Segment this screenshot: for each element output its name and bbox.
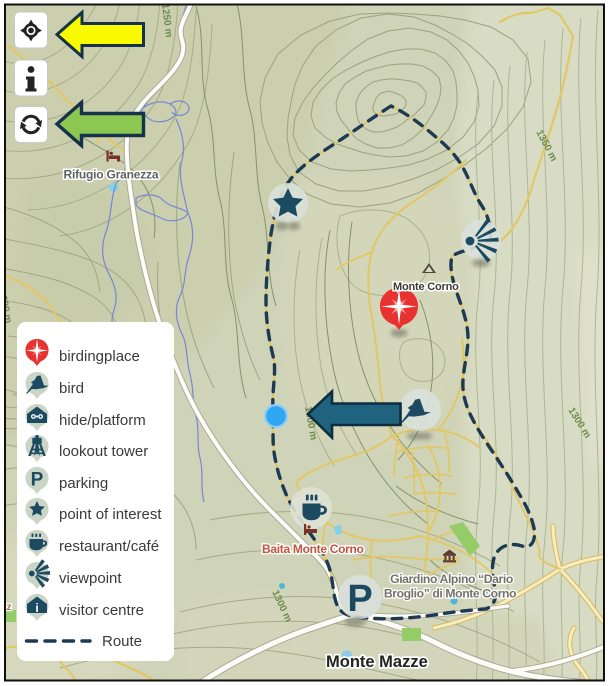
svg-text:Giardino Alpino “Dario: Giardino Alpino “Dario xyxy=(390,572,513,586)
svg-text:viewpoint: viewpoint xyxy=(59,570,122,587)
svg-text:bird: bird xyxy=(59,380,84,397)
svg-text:P: P xyxy=(347,578,372,620)
svg-text:parking: parking xyxy=(59,475,108,492)
svg-text:Baita Monte Corno: Baita Monte Corno xyxy=(262,542,364,556)
svg-text:Monte Mazze: Monte Mazze xyxy=(326,653,428,671)
svg-text:Broglio” di Monte Corno: Broglio” di Monte Corno xyxy=(384,587,516,601)
svg-text:birdingplace: birdingplace xyxy=(59,348,140,365)
svg-text:i: i xyxy=(35,601,38,615)
svg-text:restaurant/café: restaurant/café xyxy=(59,538,159,555)
svg-text:lookout tower: lookout tower xyxy=(59,443,148,460)
svg-text:point of interest: point of interest xyxy=(59,506,162,523)
svg-text:Route: Route xyxy=(102,633,142,650)
svg-text:hide/platform: hide/platform xyxy=(59,412,146,429)
svg-text:Monte Corno: Monte Corno xyxy=(393,281,459,293)
svg-text:Rifugio Granezza: Rifugio Granezza xyxy=(64,168,159,182)
svg-text:visitor centre: visitor centre xyxy=(59,602,144,619)
svg-text:P: P xyxy=(31,470,44,491)
